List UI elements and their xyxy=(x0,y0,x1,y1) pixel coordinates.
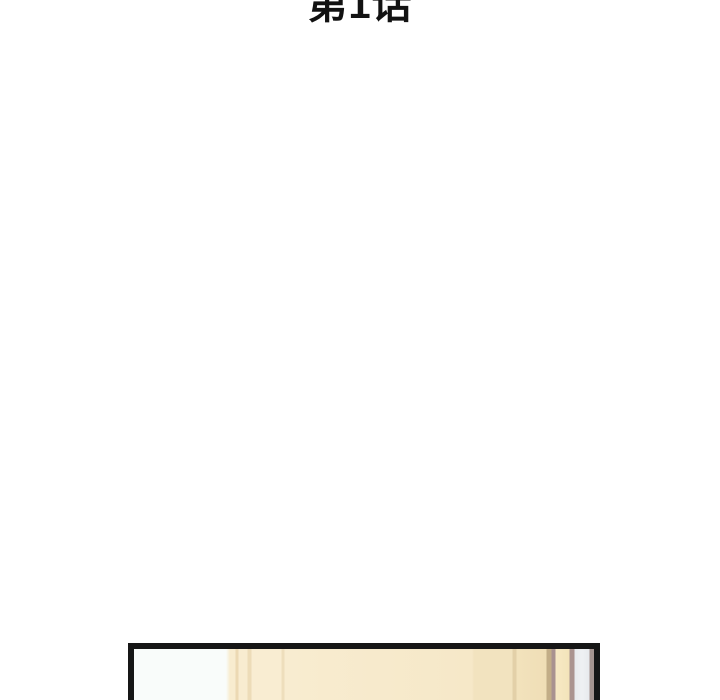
chapter-title: 第1话 xyxy=(0,0,720,25)
panel-artwork-wall xyxy=(134,649,594,700)
comic-panel xyxy=(128,643,600,700)
webtoon-reader-page: 第1话 xyxy=(0,0,720,700)
